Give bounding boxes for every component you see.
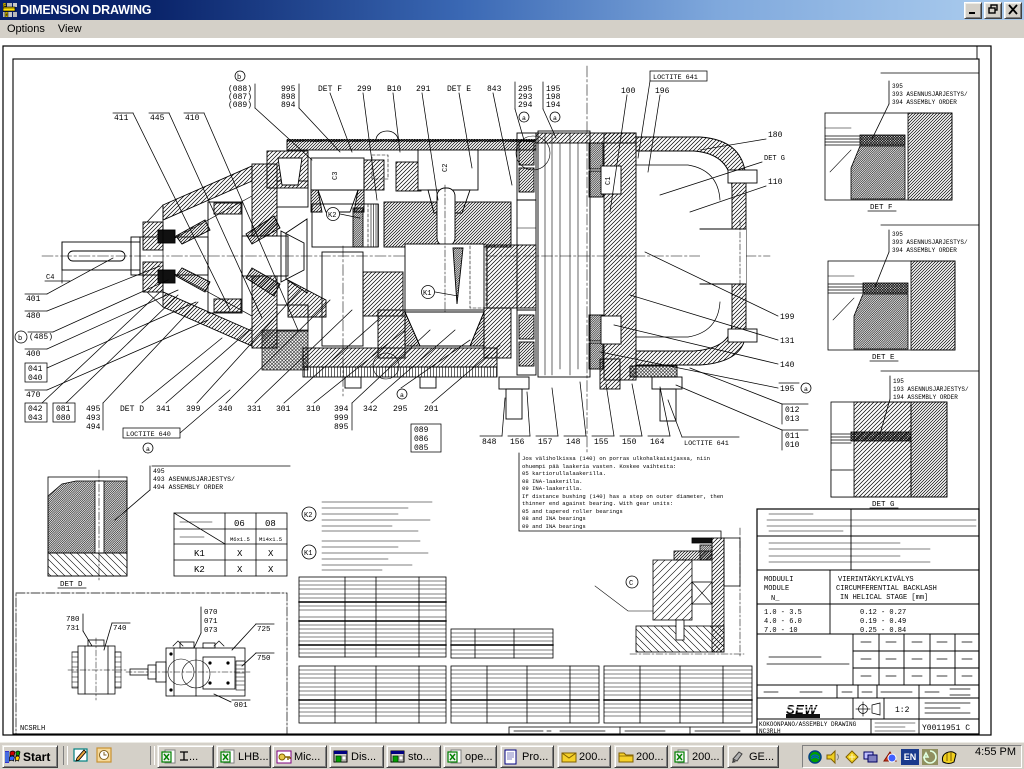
svg-text:750: 750 bbox=[257, 655, 271, 663]
svg-text:Jos väliholkissa (140) on porr: Jos väliholkissa (140) on porras ulkohal… bbox=[522, 455, 710, 462]
svg-text:164: 164 bbox=[650, 438, 665, 447]
svg-text:410: 410 bbox=[185, 114, 200, 123]
svg-text:C3: C3 bbox=[332, 172, 340, 180]
svg-text:331: 331 bbox=[247, 405, 262, 414]
svg-text:b: b bbox=[18, 335, 22, 343]
svg-text:073: 073 bbox=[204, 627, 218, 635]
svg-text:MODULE: MODULE bbox=[764, 585, 789, 593]
svg-text:05 and tapered roller bearings: 05 and tapered roller bearings bbox=[522, 508, 623, 515]
svg-text:150: 150 bbox=[622, 438, 637, 447]
svg-text:X: X bbox=[237, 549, 243, 559]
svg-text:a: a bbox=[804, 386, 808, 393]
svg-text:1:2: 1:2 bbox=[895, 706, 910, 715]
svg-text:C: C bbox=[629, 580, 633, 588]
svg-text:470: 470 bbox=[26, 391, 41, 400]
svg-text:493: 493 bbox=[86, 414, 101, 423]
svg-text:156: 156 bbox=[510, 438, 525, 447]
svg-text:895: 895 bbox=[334, 423, 349, 432]
svg-text:M14x1.5: M14x1.5 bbox=[259, 536, 282, 543]
svg-text:DET G: DET G bbox=[764, 155, 785, 163]
svg-text:Y0011951 C: Y0011951 C bbox=[922, 724, 970, 733]
svg-text:071: 071 bbox=[204, 618, 218, 626]
svg-text:X: X bbox=[268, 549, 274, 559]
svg-text:195: 195 bbox=[780, 385, 795, 394]
svg-text:085: 085 bbox=[414, 444, 429, 453]
svg-text:0.12 - 0.27: 0.12 - 0.27 bbox=[860, 609, 906, 617]
svg-text:401: 401 bbox=[26, 295, 41, 304]
svg-text:089: 089 bbox=[414, 426, 429, 435]
svg-text:N_: N_ bbox=[771, 595, 780, 603]
svg-text:K1: K1 bbox=[194, 549, 205, 559]
svg-text:KOKOONPANO/ASSEMBLY DRAWING: KOKOONPANO/ASSEMBLY DRAWING bbox=[759, 721, 857, 728]
svg-text:342: 342 bbox=[363, 405, 378, 414]
svg-text:DET D: DET D bbox=[120, 405, 144, 414]
svg-text:MODUULI: MODUULI bbox=[764, 576, 793, 584]
svg-text:If distance bushing (140) has: If distance bushing (140) has a step on … bbox=[522, 493, 723, 500]
svg-text:b: b bbox=[237, 74, 241, 82]
svg-text:08 INA-laakerilla.: 08 INA-laakerilla. bbox=[522, 478, 582, 485]
svg-text:LOCTITE 640: LOCTITE 640 bbox=[126, 431, 171, 439]
svg-text:VIERINTÄKYLKIVÄLYS: VIERINTÄKYLKIVÄLYS bbox=[838, 575, 914, 584]
svg-text:493 ASENNUSJÄRJESTYS/: 493 ASENNUSJÄRJESTYS/ bbox=[153, 475, 235, 483]
svg-text:393 ASENNUSJÄRJESTYS/: 393 ASENNUSJÄRJESTYS/ bbox=[892, 91, 968, 98]
svg-text:395: 395 bbox=[892, 83, 903, 90]
svg-text:070: 070 bbox=[204, 609, 218, 617]
svg-text:731: 731 bbox=[66, 625, 80, 633]
svg-text:LOCTITE 641: LOCTITE 641 bbox=[653, 74, 698, 82]
svg-text:740: 740 bbox=[113, 625, 127, 633]
svg-text:012: 012 bbox=[785, 406, 800, 415]
svg-text:157: 157 bbox=[538, 438, 553, 447]
svg-text:09 INA-laakerilla.: 09 INA-laakerilla. bbox=[522, 485, 582, 492]
svg-text:CIRCUMFERENTIAL BACKLASH: CIRCUMFERENTIAL BACKLASH bbox=[836, 585, 937, 593]
svg-text:194: 194 bbox=[546, 101, 561, 110]
svg-text:340: 340 bbox=[218, 405, 233, 414]
svg-text:291: 291 bbox=[416, 85, 431, 94]
svg-text:100: 100 bbox=[621, 87, 636, 96]
svg-text:011: 011 bbox=[785, 432, 800, 441]
svg-text:894: 894 bbox=[281, 101, 296, 110]
svg-text:IN HELICAL STAGE [mm]: IN HELICAL STAGE [mm] bbox=[840, 594, 928, 602]
svg-text:411: 411 bbox=[114, 114, 129, 123]
svg-text:299: 299 bbox=[357, 85, 372, 94]
svg-text:725: 725 bbox=[257, 626, 271, 634]
svg-text:780: 780 bbox=[66, 616, 80, 624]
svg-text:445: 445 bbox=[150, 114, 165, 123]
svg-text:K2: K2 bbox=[194, 565, 205, 575]
svg-text:040: 040 bbox=[28, 374, 43, 383]
svg-text:thinner end against bearing. W: thinner end against bearing. With gear u… bbox=[522, 500, 673, 507]
svg-text:041: 041 bbox=[28, 365, 43, 374]
svg-text:140: 140 bbox=[780, 361, 795, 370]
svg-text:09 and INA bearings: 09 and INA bearings bbox=[522, 523, 586, 530]
svg-text:180: 180 bbox=[768, 131, 783, 140]
svg-text:394: 394 bbox=[334, 405, 349, 414]
svg-text:399: 399 bbox=[186, 405, 201, 414]
svg-text:480: 480 bbox=[26, 312, 41, 321]
svg-text:494 ASSEMBLY ORDER: 494 ASSEMBLY ORDER bbox=[153, 484, 223, 491]
svg-text:010: 010 bbox=[785, 441, 800, 450]
svg-text:NC3RLH: NC3RLH bbox=[759, 728, 781, 735]
svg-text:X: X bbox=[268, 565, 274, 575]
svg-text:131: 131 bbox=[780, 337, 795, 346]
svg-text:ohuempi pää laakeria vasten. K: ohuempi pää laakeria vasten. Koskee vaih… bbox=[522, 463, 676, 470]
svg-text:199: 199 bbox=[780, 313, 795, 322]
svg-text:148: 148 bbox=[566, 438, 581, 447]
svg-text:05 kartiorullalaakerilla.: 05 kartiorullalaakerilla. bbox=[522, 470, 606, 477]
svg-text:999: 999 bbox=[334, 414, 349, 423]
svg-text:194 ASSEMBLY ORDER: 194 ASSEMBLY ORDER bbox=[893, 394, 958, 401]
svg-text:1.0 - 3.5: 1.0 - 3.5 bbox=[764, 609, 802, 617]
svg-text:394 ASSEMBLY ORDER: 394 ASSEMBLY ORDER bbox=[892, 99, 957, 106]
svg-text:394 ASSEMBLY ORDER: 394 ASSEMBLY ORDER bbox=[892, 247, 957, 254]
svg-text:081: 081 bbox=[56, 405, 71, 414]
svg-text:310: 310 bbox=[306, 405, 321, 414]
svg-text:a: a bbox=[553, 115, 557, 122]
svg-text:395: 395 bbox=[892, 231, 903, 238]
svg-text:4.0 - 6.0: 4.0 - 6.0 bbox=[764, 618, 802, 626]
svg-text:X: X bbox=[237, 565, 243, 575]
svg-text:043: 043 bbox=[28, 414, 43, 423]
svg-text:195: 195 bbox=[893, 378, 904, 385]
svg-text:294: 294 bbox=[518, 101, 533, 110]
svg-text:080: 080 bbox=[56, 414, 71, 423]
svg-text:193 ASENNUSJÄRJESTYS/: 193 ASENNUSJÄRJESTYS/ bbox=[893, 386, 969, 393]
svg-text:086: 086 bbox=[414, 435, 429, 444]
svg-text:042: 042 bbox=[28, 405, 43, 414]
svg-text:E: E bbox=[6, 12, 9, 17]
svg-text:B10: B10 bbox=[387, 85, 402, 94]
svg-text:295: 295 bbox=[393, 405, 408, 414]
svg-text:495: 495 bbox=[153, 468, 165, 475]
svg-text:08 and INA bearings: 08 and INA bearings bbox=[522, 515, 586, 522]
svg-text:08: 08 bbox=[265, 519, 276, 529]
svg-text:494: 494 bbox=[86, 423, 101, 432]
svg-text:LOCTITE 641: LOCTITE 641 bbox=[684, 440, 729, 448]
svg-text:C1: C1 bbox=[605, 177, 613, 185]
svg-text:393 ASENNUSJÄRJESTYS/: 393 ASENNUSJÄRJESTYS/ bbox=[892, 239, 968, 246]
svg-text:848: 848 bbox=[482, 438, 497, 447]
svg-text:06: 06 bbox=[234, 519, 245, 529]
svg-text:a: a bbox=[522, 115, 526, 122]
svg-text:a: a bbox=[400, 392, 404, 399]
svg-text:C2: C2 bbox=[442, 164, 450, 172]
svg-text:K2: K2 bbox=[328, 212, 336, 220]
svg-text:K1: K1 bbox=[423, 290, 431, 298]
svg-text:(485): (485) bbox=[29, 333, 53, 342]
svg-text:K1: K1 bbox=[304, 550, 312, 558]
svg-text:(089): (089) bbox=[228, 101, 252, 110]
svg-text:001: 001 bbox=[234, 702, 248, 710]
svg-text:400: 400 bbox=[26, 350, 41, 359]
svg-text:495: 495 bbox=[86, 405, 101, 414]
svg-text:M6x1.5: M6x1.5 bbox=[230, 536, 250, 543]
svg-text:843: 843 bbox=[487, 85, 502, 94]
svg-text:110: 110 bbox=[768, 178, 783, 187]
svg-text:0.19 - 0.49: 0.19 - 0.49 bbox=[860, 618, 906, 626]
svg-text:155: 155 bbox=[594, 438, 609, 447]
svg-text:K2: K2 bbox=[304, 512, 312, 520]
svg-text:201: 201 bbox=[424, 405, 439, 414]
svg-text:a: a bbox=[146, 446, 150, 453]
svg-text:196: 196 bbox=[655, 87, 670, 96]
svg-text:013: 013 bbox=[785, 415, 800, 424]
svg-text:341: 341 bbox=[156, 405, 171, 414]
svg-text:301: 301 bbox=[276, 405, 291, 414]
svg-text:NCSRLH: NCSRLH bbox=[20, 725, 45, 733]
